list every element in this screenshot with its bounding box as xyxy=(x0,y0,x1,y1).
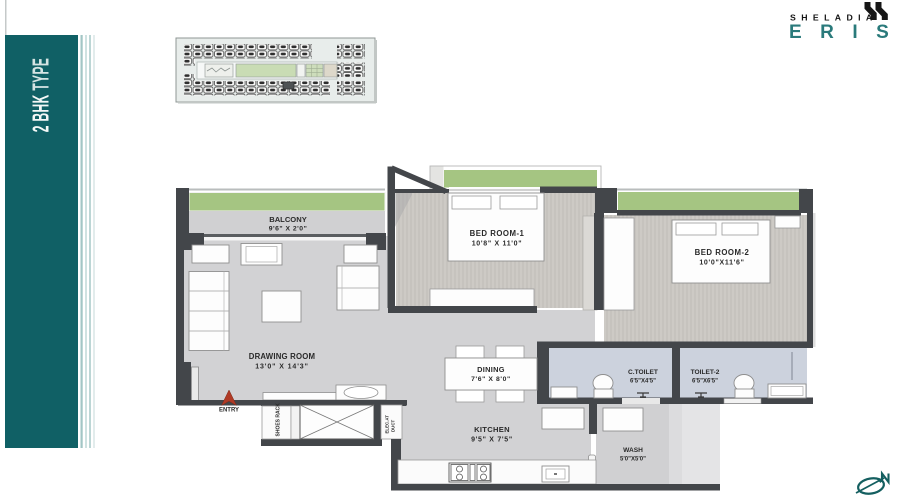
svg-text:DUCT: DUCT xyxy=(391,419,396,432)
svg-text:SHOES RACK: SHOES RACK xyxy=(276,403,282,437)
svg-text:BALCONY: BALCONY xyxy=(269,215,307,224)
svg-text:BED ROOM-2: BED ROOM-2 xyxy=(695,248,750,257)
svg-text:9'6" X 2'0": 9'6" X 2'0" xyxy=(269,226,308,233)
svg-text:10'0"X11'6": 10'0"X11'6" xyxy=(699,260,744,267)
svg-text:ERIS: ERIS xyxy=(789,22,900,43)
svg-text:DINING: DINING xyxy=(477,365,505,374)
svg-text:5'0"X5'0": 5'0"X5'0" xyxy=(620,457,646,463)
svg-text:DRAWING ROOM: DRAWING ROOM xyxy=(249,352,316,361)
svg-text:2 BHK TYPE: 2 BHK TYPE xyxy=(27,58,53,133)
svg-text:WASH: WASH xyxy=(623,447,643,454)
svg-text:10'8" X 11'0": 10'8" X 11'0" xyxy=(472,241,523,248)
svg-text:KITCHEN: KITCHEN xyxy=(474,425,510,434)
svg-text:ENTRY: ENTRY xyxy=(219,408,239,414)
svg-text:SHELADIA: SHELADIA xyxy=(790,13,878,23)
svg-text:6'5"X6'5": 6'5"X6'5" xyxy=(692,379,718,385)
svg-text:ELEC.AT: ELEC.AT xyxy=(385,415,390,434)
svg-text:9'5" X 7'5": 9'5" X 7'5" xyxy=(471,437,513,444)
svg-text:TOILET-2: TOILET-2 xyxy=(691,369,720,376)
svg-text:BED ROOM-1: BED ROOM-1 xyxy=(470,229,525,238)
svg-text:13'0" X 14'3": 13'0" X 14'3" xyxy=(255,364,309,371)
svg-text:7'6" X 8'0": 7'6" X 8'0" xyxy=(471,376,511,383)
svg-text:6'5"X4'5": 6'5"X4'5" xyxy=(630,379,656,385)
svg-text:C.TOILET: C.TOILET xyxy=(628,369,658,376)
